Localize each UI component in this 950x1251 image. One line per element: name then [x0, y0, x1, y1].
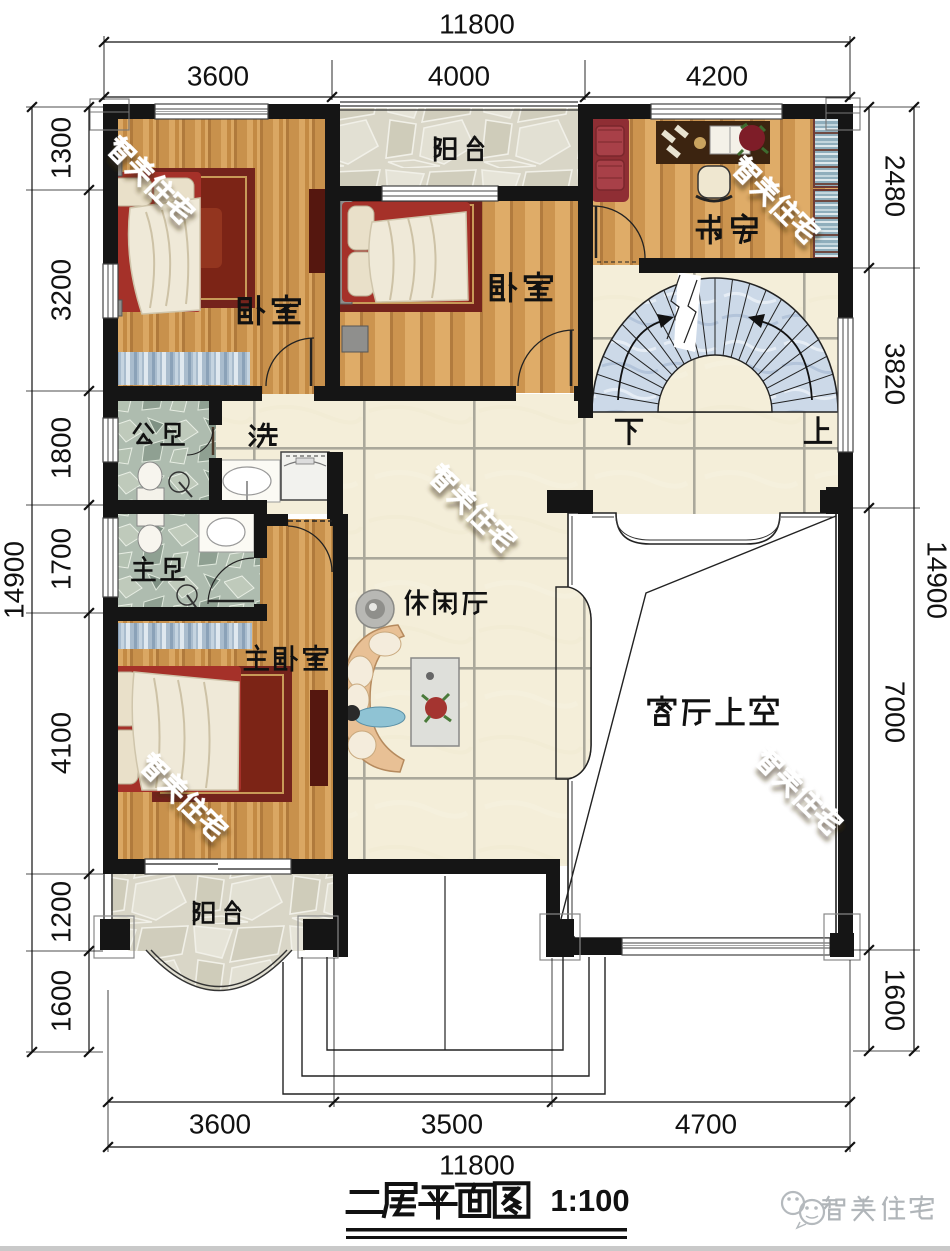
svg-text:7000: 7000	[880, 681, 911, 743]
svg-text:11800: 11800	[439, 8, 515, 39]
svg-text:1700: 1700	[45, 528, 76, 590]
svg-text:11800: 11800	[439, 1149, 515, 1180]
svg-text:4000: 4000	[428, 60, 490, 91]
svg-text:3500: 3500	[421, 1108, 483, 1139]
svg-text:3200: 3200	[45, 259, 76, 321]
svg-text:1:100: 1:100	[550, 1183, 629, 1218]
svg-text:3600: 3600	[187, 60, 249, 91]
svg-text:1800: 1800	[45, 417, 76, 479]
svg-text:3820: 3820	[880, 343, 911, 405]
svg-text:1600: 1600	[880, 969, 911, 1031]
svg-text:2480: 2480	[880, 155, 911, 217]
svg-text:1300: 1300	[45, 117, 76, 179]
svg-text:1200: 1200	[45, 881, 76, 943]
svg-text:4100: 4100	[45, 712, 76, 774]
svg-text:14900: 14900	[0, 541, 29, 619]
svg-text:1600: 1600	[45, 970, 76, 1032]
svg-text:14900: 14900	[922, 541, 950, 619]
svg-text:3600: 3600	[189, 1108, 251, 1139]
svg-text:4700: 4700	[675, 1108, 737, 1139]
svg-text:4200: 4200	[686, 60, 748, 91]
